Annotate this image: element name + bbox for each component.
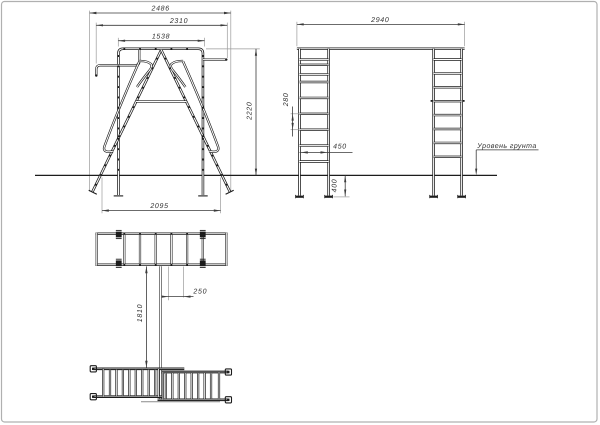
svg-text:250: 250 — [192, 289, 207, 296]
svg-text:400: 400 — [332, 179, 339, 193]
svg-text:450: 450 — [333, 143, 347, 150]
svg-text:1538: 1538 — [152, 33, 170, 40]
svg-text:Уровень грунта: Уровень грунта — [476, 143, 536, 150]
svg-text:2095: 2095 — [149, 203, 168, 210]
svg-text:2940: 2940 — [370, 17, 389, 24]
svg-text:2220: 2220 — [247, 102, 254, 121]
svg-text:280: 280 — [283, 93, 290, 108]
svg-text:1810: 1810 — [137, 304, 144, 322]
svg-text:2486: 2486 — [151, 6, 170, 13]
svg-text:2310: 2310 — [169, 18, 188, 25]
